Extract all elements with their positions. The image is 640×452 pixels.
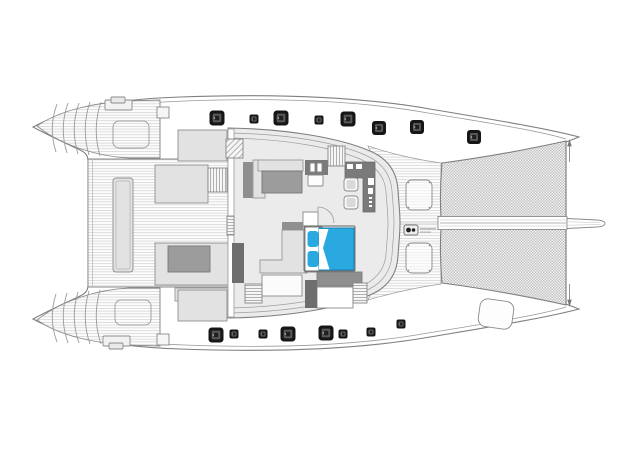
hatch-hinge-dot [429, 207, 431, 209]
transom-locker-port [178, 130, 227, 161]
hatch-center [215, 116, 220, 121]
hatch-center [400, 323, 403, 326]
hatch-glint [344, 118, 346, 120]
hatch-center [253, 118, 256, 121]
hatch-center [279, 116, 284, 121]
galley-sink-left [310, 163, 315, 172]
saloon-coffee-table [262, 171, 302, 193]
hatch-center [324, 331, 329, 336]
hatch-hinge-dot [408, 207, 410, 209]
foredeck-hatch-1 [406, 180, 432, 210]
cabin-door-panel [232, 243, 244, 283]
windlass-drum-2 [412, 228, 416, 232]
hatch-center [262, 333, 265, 336]
deck-divider-port [157, 107, 169, 118]
hatch-hinge-dot [429, 245, 431, 247]
foredeck-walkway [438, 217, 567, 230]
bed-wall-port [282, 222, 303, 230]
hatch-glint [376, 127, 378, 129]
hatch-glint [471, 136, 473, 138]
hatch-glint [232, 333, 233, 334]
nav-desk-item-1 [347, 164, 353, 169]
deck-divider-starboard [157, 334, 169, 345]
hatch-center [370, 331, 373, 334]
catamaran-deck-plan [0, 0, 640, 452]
galley-sink-right [317, 163, 322, 172]
lower-wall-panel [305, 280, 317, 308]
deck-hatch-port-2 [250, 115, 259, 124]
deck-hatch-starboard-3 [259, 330, 268, 339]
nav-desk-dot-1 [369, 197, 372, 199]
deck-hatch-port-3 [274, 111, 289, 126]
deck-plan-canvas [0, 0, 640, 452]
hatch-center [286, 332, 291, 337]
hatch-glint [369, 331, 370, 332]
hatch-glint [399, 323, 400, 324]
bow-locker-starboard [477, 298, 515, 330]
hatch-hinge-dot [408, 182, 410, 184]
hatch-center [377, 126, 381, 130]
bowsprit [567, 219, 605, 229]
galley-stool [308, 175, 323, 186]
galley-companionway-steps [328, 146, 345, 166]
deck-hatch-starboard-8 [397, 320, 406, 329]
hatch-glint [212, 334, 214, 336]
transom-locker-starboard [178, 290, 227, 321]
bed-pillow-port [308, 231, 319, 247]
hatch-glint [414, 126, 416, 128]
windlass-microlabel-2 [420, 232, 431, 234]
windlass-drum-1 [406, 228, 411, 233]
deck-hatch-starboard-6 [339, 330, 348, 339]
bed-pillow-starboard [308, 251, 319, 267]
hatch-center [233, 333, 236, 336]
starboard-companionway-steps [353, 283, 367, 303]
hatch-center [346, 117, 351, 122]
saloon-door-threshold [227, 216, 234, 235]
nav-seat-forward-pad [347, 180, 356, 189]
hatch-glint [261, 333, 262, 334]
hatch-hinge-dot [429, 270, 431, 272]
nav-desk-item-2 [356, 164, 362, 169]
owner-cabin-steps [245, 284, 262, 303]
hatch-hinge-dot [408, 245, 410, 247]
deck-hatch-starboard-2 [230, 330, 239, 339]
deck-hatch-starboard-1 [209, 328, 224, 343]
hatch-glint [322, 332, 324, 334]
hatch-glint [341, 333, 342, 334]
cockpit-entry-steps [208, 168, 227, 192]
hatch-center [415, 125, 419, 129]
nav-desk-dot-3 [369, 205, 372, 207]
lower-cabinet [262, 275, 302, 296]
deck-hatch-port-1 [210, 111, 225, 126]
deck-hatch-port-6 [372, 121, 386, 135]
foredeck-hatch-lid [406, 180, 432, 210]
hatch-center [342, 333, 345, 336]
spiral-stairs-port [226, 139, 243, 158]
nav-desk-item-4 [368, 188, 373, 194]
hatch-glint [284, 333, 286, 335]
stern-cleat-starboard-cap [109, 343, 123, 349]
hatch-glint [277, 117, 279, 119]
foredeck-hatch-2 [406, 243, 432, 273]
hatch-glint [252, 118, 253, 119]
deck-hatch-port-8 [467, 130, 481, 144]
deck-hatch-port-4 [315, 116, 324, 125]
nav-seat-aft-pad [347, 198, 356, 207]
cockpit-bench-forward [155, 165, 208, 203]
forestay-mark-port [568, 141, 571, 163]
hatch-glint [317, 119, 318, 120]
hatch-center [318, 119, 321, 122]
deck-hatch-port-7 [410, 120, 424, 134]
deck-hatch-starboard-5 [319, 326, 334, 341]
nav-desk-dot-2 [369, 201, 372, 203]
forestay-mark-starboard [568, 284, 571, 306]
hatch-center [472, 135, 476, 139]
hatch-hinge-dot [408, 270, 410, 272]
sofa-back-port [243, 162, 253, 198]
deck-hatch-starboard-4 [281, 327, 296, 342]
cockpit-table-aft [168, 246, 210, 272]
bed-nightstand [303, 212, 318, 226]
deck-hatch-starboard-7 [367, 328, 376, 337]
foredeck-hatch-lid [406, 243, 432, 273]
stern-cleat-port-cap [111, 97, 125, 103]
lower-bathroom [317, 287, 353, 308]
nav-desk-item-3 [368, 178, 374, 185]
hatch-glint [213, 117, 215, 119]
hatch-hinge-dot [429, 182, 431, 184]
galley-unit [305, 160, 328, 175]
sofa-chaise-port [258, 160, 303, 171]
deck-hatch-port-5 [341, 112, 356, 127]
windlass-microlabel-1 [420, 228, 436, 230]
hatch-center [214, 333, 219, 338]
